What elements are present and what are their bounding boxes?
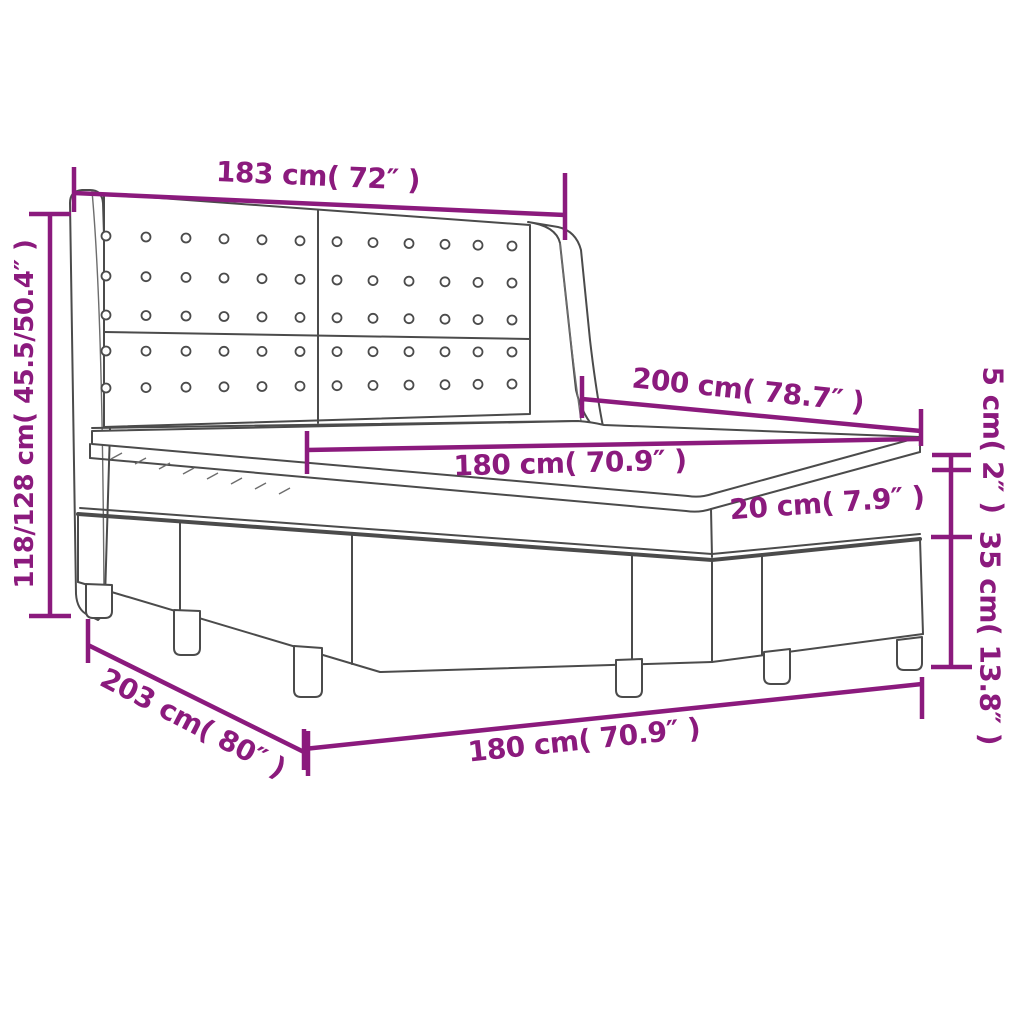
tufting-button	[441, 315, 450, 324]
tufting-button	[405, 239, 414, 248]
tufting-button	[258, 274, 267, 283]
tufting-button	[333, 313, 342, 322]
tufting-button	[474, 347, 483, 356]
tufting-button	[441, 240, 450, 249]
diagram-canvas: 183 cm( 72″ ) 118/128 cm( 45.5/50.4″ ) 2…	[0, 0, 1024, 1024]
tufting-button	[369, 347, 378, 356]
stitch-hatch	[207, 473, 218, 479]
tufting-button	[258, 312, 267, 321]
tufting-button	[102, 272, 111, 281]
tufting-button	[142, 347, 151, 356]
dim-base-width: 180 cm( 70.9″ )	[304, 677, 922, 770]
tufting-button	[441, 277, 450, 286]
tufting-button	[474, 380, 483, 389]
tufting-button	[405, 314, 414, 323]
tufting-button	[258, 347, 267, 356]
tufting-button	[333, 347, 342, 356]
tufting-button	[405, 277, 414, 286]
tufting-button	[220, 382, 229, 391]
tufting-button	[405, 381, 414, 390]
bed-leg	[174, 610, 200, 655]
dim-right-stack: 5 cm( 2″ ) 35 cm( 13.8″ )	[931, 366, 1010, 745]
bed-leg	[764, 649, 790, 684]
tufting-button	[142, 272, 151, 281]
tufting-button	[474, 315, 483, 324]
dim-label-bed-length: 200 cm( 78.7″ )	[630, 361, 865, 418]
bed-drawing	[70, 190, 923, 697]
tufting-button	[102, 311, 111, 320]
tufting-button	[508, 242, 517, 251]
headboard-right-wing	[528, 222, 606, 441]
tufting-button	[441, 347, 450, 356]
dim-label-mattress-width: 180 cm( 70.9″ )	[453, 443, 687, 482]
tufting-button	[296, 382, 305, 391]
tufting-button	[369, 381, 378, 390]
tufting-button	[508, 380, 517, 389]
dim-label-base-length: 203 cm( 80″ )	[95, 661, 291, 784]
dim-headboard-height: 118/128 cm( 45.5/50.4″ )	[10, 214, 71, 616]
tufting-button	[405, 347, 414, 356]
stitch-hatch	[279, 488, 290, 494]
box-spring-base	[78, 508, 923, 697]
dim-label-mattress-thickness: 20 cm( 7.9″ )	[728, 480, 925, 527]
tufting-button	[182, 383, 191, 392]
tufting-button	[142, 233, 151, 242]
tufting-button	[258, 235, 267, 244]
tufting-button	[182, 234, 191, 243]
bed-leg	[616, 659, 642, 697]
tufting-button	[102, 232, 111, 241]
tufting-button	[258, 382, 267, 391]
tufting-button	[333, 237, 342, 246]
headboard	[70, 190, 606, 620]
tufting-button	[296, 347, 305, 356]
tufting-button	[296, 313, 305, 322]
bed-leg	[294, 646, 322, 697]
bed-leg	[897, 637, 922, 670]
stitch-hatch	[183, 468, 194, 474]
tufting-button	[508, 279, 517, 288]
tufting-button	[220, 312, 229, 321]
dim-label-base-height: 35 cm( 13.8″ )	[974, 531, 1007, 745]
dim-mattress-thickness: 20 cm( 7.9″ )	[728, 480, 925, 527]
tufting-button	[220, 274, 229, 283]
stitch-hatch	[231, 478, 242, 484]
tufting-button	[369, 276, 378, 285]
mattress-corner-edge	[711, 509, 712, 557]
bed-leg	[86, 584, 112, 618]
tufting-button	[102, 384, 111, 393]
tufting-button	[333, 381, 342, 390]
tufting-button	[142, 311, 151, 320]
tufting-button	[182, 312, 191, 321]
tufting-button	[296, 275, 305, 284]
tufting-button	[508, 348, 517, 357]
tufting-button	[220, 347, 229, 356]
tufting-button	[441, 380, 450, 389]
dim-label-topper-thickness: 5 cm( 2″ )	[977, 366, 1010, 513]
tufting-button	[369, 238, 378, 247]
tufting-button	[220, 234, 229, 243]
dim-label-headboard-height: 118/128 cm( 45.5/50.4″ )	[10, 240, 40, 589]
tufting-button	[182, 347, 191, 356]
stitch-hatch	[255, 483, 266, 489]
base-right-edge	[920, 539, 923, 634]
tufting-button	[296, 236, 305, 245]
base-foot-bottom-edge	[712, 634, 923, 662]
tufting-button	[369, 314, 378, 323]
stitch-hatch	[111, 453, 122, 459]
tufting-button	[333, 276, 342, 285]
tufting-button	[508, 316, 517, 325]
tufting-button	[182, 273, 191, 282]
tufting-button	[142, 383, 151, 392]
bed-dimension-diagram: 183 cm( 72″ ) 118/128 cm( 45.5/50.4″ ) 2…	[0, 0, 1024, 1024]
tufting-button	[102, 347, 111, 356]
tufting-button	[474, 278, 483, 287]
tufting-button	[474, 241, 483, 250]
dim-label-headboard-width: 183 cm( 72″ )	[215, 155, 420, 197]
